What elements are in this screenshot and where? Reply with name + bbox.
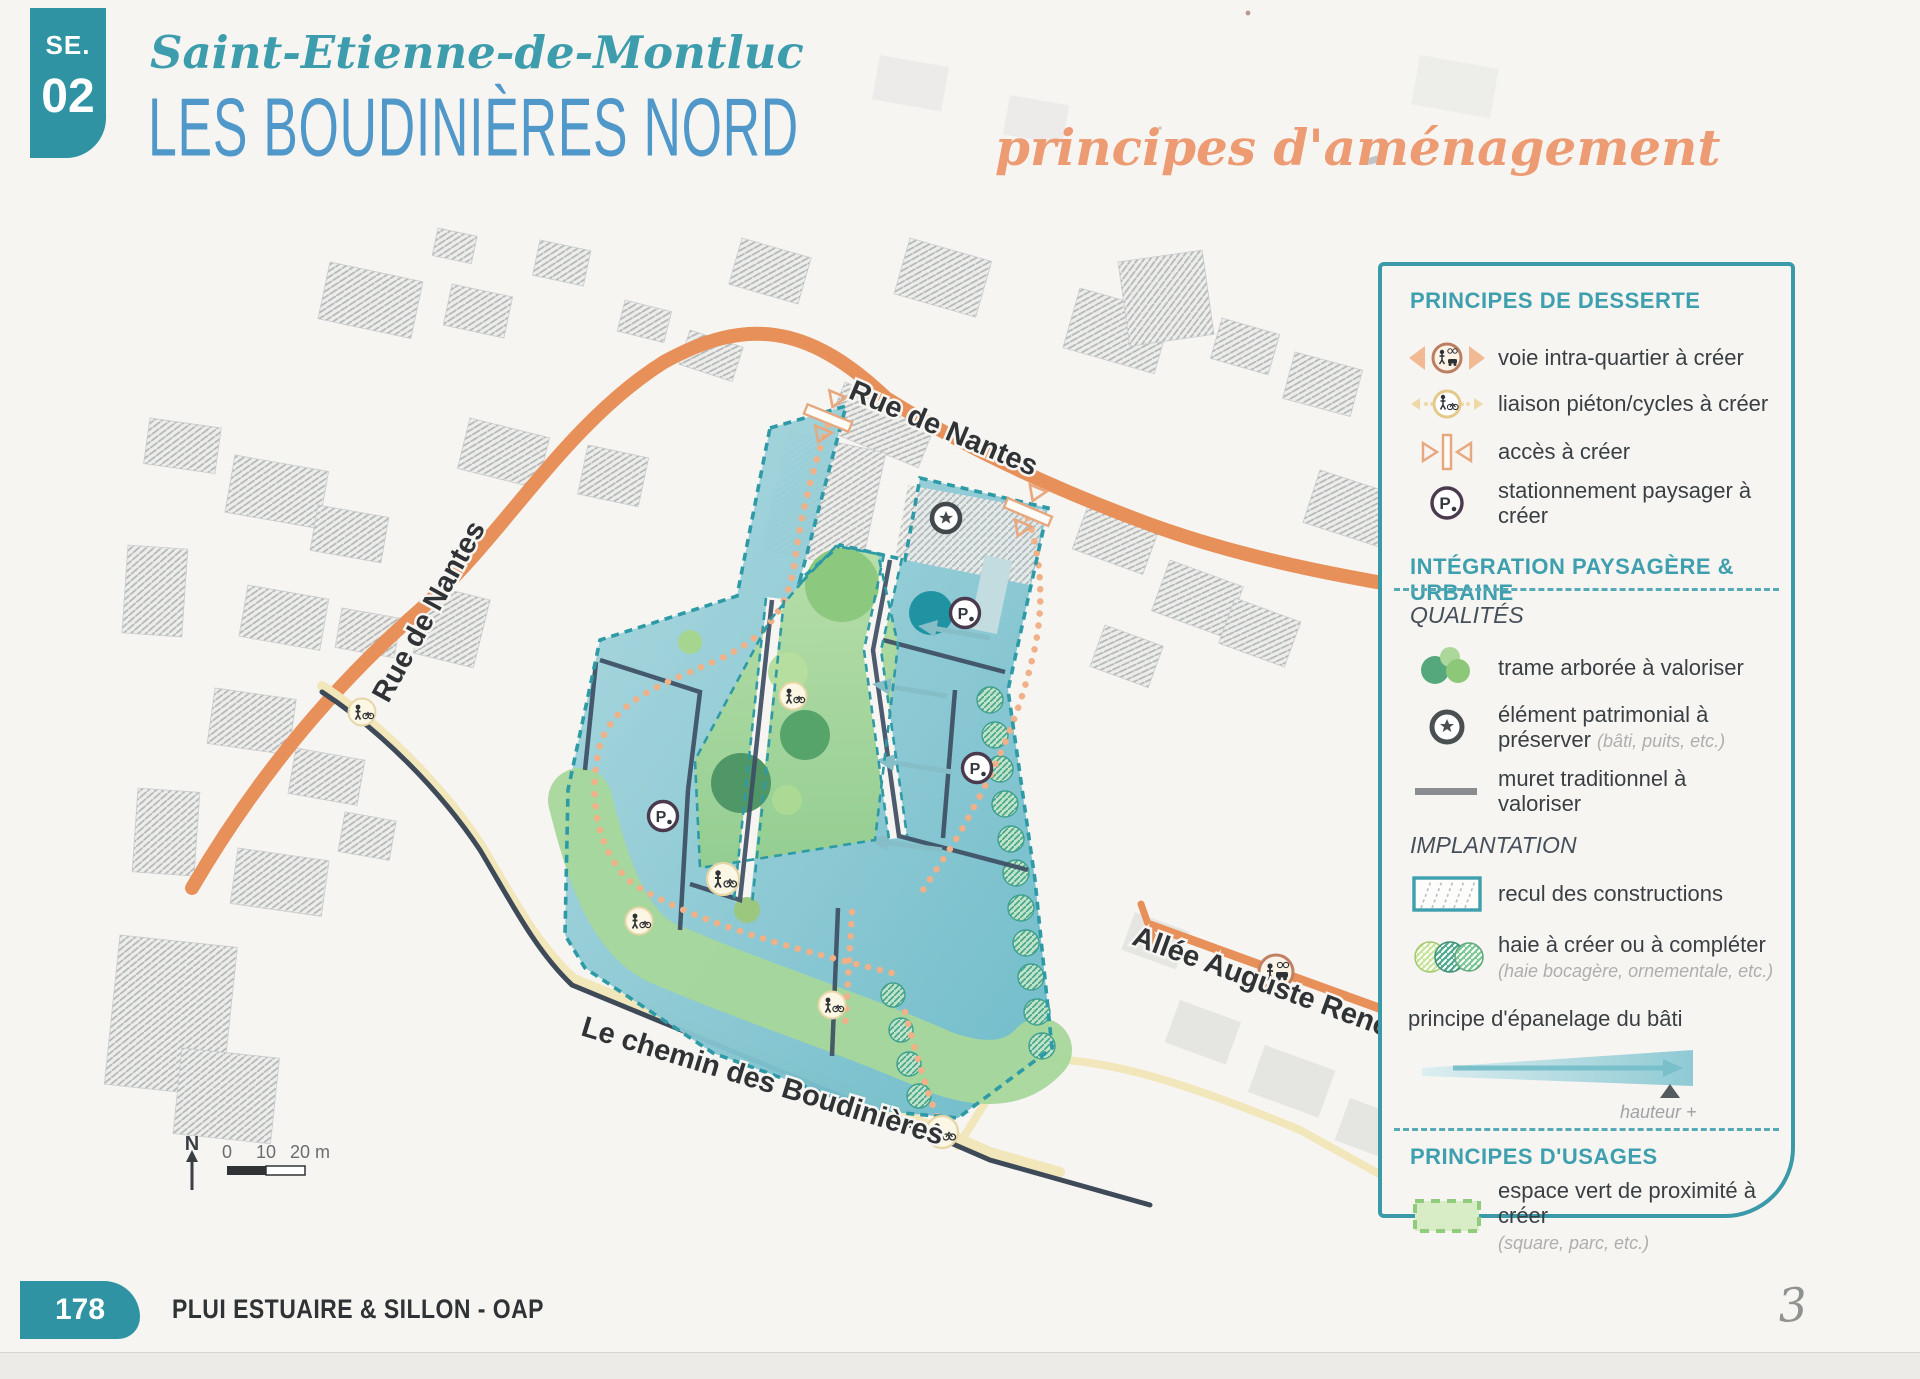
- document-title: PLUI ESTUAIRE & SILLON - OAP: [172, 1294, 544, 1325]
- legend-label: stationnement paysager à créer: [1498, 478, 1774, 529]
- legend-panel: PRINCIPES DE DESSERTE voie intra-quartie…: [1378, 262, 1795, 1218]
- page-title: LES BOUDINIÈRES NORD: [148, 80, 799, 174]
- legend-item-patrimonial: élément patrimonial à préserver (bâti, p…: [1404, 702, 1774, 753]
- legend-label: haie à créer ou à compléter (haie bocagè…: [1498, 932, 1773, 983]
- epanelage-gradient-icon: [1408, 1038, 1748, 1123]
- muret-icon: [1404, 779, 1490, 803]
- legend-section-integration: INTÉGRATION PAYSAGÈRE & URBAINE: [1410, 554, 1791, 606]
- legend-item-muret: muret traditionnel à valoriser: [1404, 766, 1774, 817]
- legend-item-voie: voie intra-quartier à créer: [1404, 338, 1774, 378]
- legend-item-liaison: liaison piéton/cycles à créer: [1404, 384, 1774, 424]
- oap-page: P: [0, 0, 1920, 1379]
- liaison-pieton-cycles-icon: [1404, 384, 1490, 424]
- trame-arboree-icon: [1404, 644, 1490, 692]
- sector-badge: SE. 02: [30, 8, 106, 158]
- legend-label: élément patrimonial à préserver (bâti, p…: [1498, 702, 1774, 753]
- legend-item-epanelage: principe d'épanelage du bâti: [1408, 1006, 1683, 1032]
- svg-text:P: P: [1439, 494, 1450, 513]
- recul-icon: [1404, 872, 1490, 916]
- legend-label: espace vert de proximité à créer (square…: [1498, 1178, 1774, 1254]
- legend-note: (square, parc, etc.): [1498, 1233, 1649, 1253]
- espace-vert-icon: [1404, 1194, 1490, 1238]
- legend-divider: [1394, 1128, 1779, 1131]
- commune-name: Saint-Etienne-de-Montluc: [150, 26, 804, 79]
- svg-text:0: 0: [222, 1142, 232, 1162]
- legend-divider: [1394, 588, 1779, 591]
- legend-note: (bâti, puits, etc.): [1597, 731, 1725, 751]
- legend-item-haie: haie à créer ou à compléter (haie bocagè…: [1404, 932, 1774, 983]
- legend-note-hauteur: hauteur +: [1620, 1102, 1697, 1123]
- haie-icon: [1404, 935, 1490, 979]
- legend-item-recul: recul des constructions: [1404, 872, 1774, 916]
- sector-code: SE.: [30, 30, 106, 61]
- legend-label: accès à créer: [1498, 439, 1630, 464]
- svg-text:10: 10: [256, 1142, 276, 1162]
- legend-subsection-implantation: IMPLANTATION: [1410, 832, 1577, 859]
- legend-section-usages: PRINCIPES D'USAGES: [1410, 1144, 1658, 1170]
- stationnement-icon: P: [1404, 481, 1490, 525]
- legend-item-acces: accès à créer: [1404, 430, 1774, 474]
- page-number-tab: 178: [20, 1281, 140, 1339]
- element-patrimonial-icon: [1404, 704, 1490, 750]
- legend-label: voie intra-quartier à créer: [1498, 345, 1744, 370]
- legend-label: recul des constructions: [1498, 881, 1723, 906]
- legend-note: (haie bocagère, ornementale, etc.): [1498, 961, 1773, 981]
- page-number: 178: [55, 1293, 105, 1327]
- page-subtitle: principes d'aménagement: [995, 118, 1721, 177]
- legend-subsection-qualites: QUALITÉS: [1410, 602, 1524, 629]
- sector-number: 02: [30, 69, 106, 124]
- legend-section-desserte: PRINCIPES DE DESSERTE: [1410, 288, 1700, 314]
- legend-label: liaison piéton/cycles à créer: [1498, 391, 1768, 416]
- legend-item-espace-vert: espace vert de proximité à créer (square…: [1404, 1178, 1774, 1254]
- legend-label: trame arborée à valoriser: [1498, 655, 1744, 680]
- scan-edge-strip: [0, 1352, 1920, 1379]
- handwritten-page-note: 3: [1776, 1277, 1809, 1333]
- svg-text:20 m: 20 m: [290, 1142, 330, 1162]
- voie-intra-quartier-icon: [1404, 338, 1490, 378]
- legend-item-stationnement: P stationnement paysager à créer: [1404, 478, 1774, 529]
- legend-label: muret traditionnel à valoriser: [1498, 766, 1774, 817]
- legend-item-trame: trame arborée à valoriser: [1404, 644, 1774, 692]
- acces-icon: [1404, 430, 1490, 474]
